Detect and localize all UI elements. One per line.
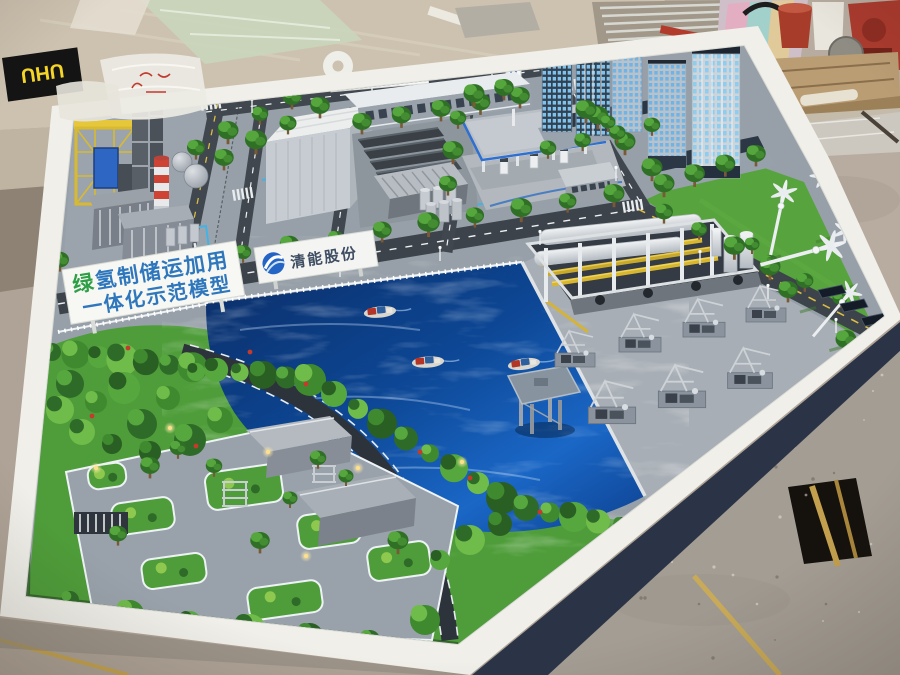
scene: UHU: [0, 0, 900, 675]
workshop-photo: UHU: [0, 0, 900, 675]
vignette: [0, 0, 900, 675]
